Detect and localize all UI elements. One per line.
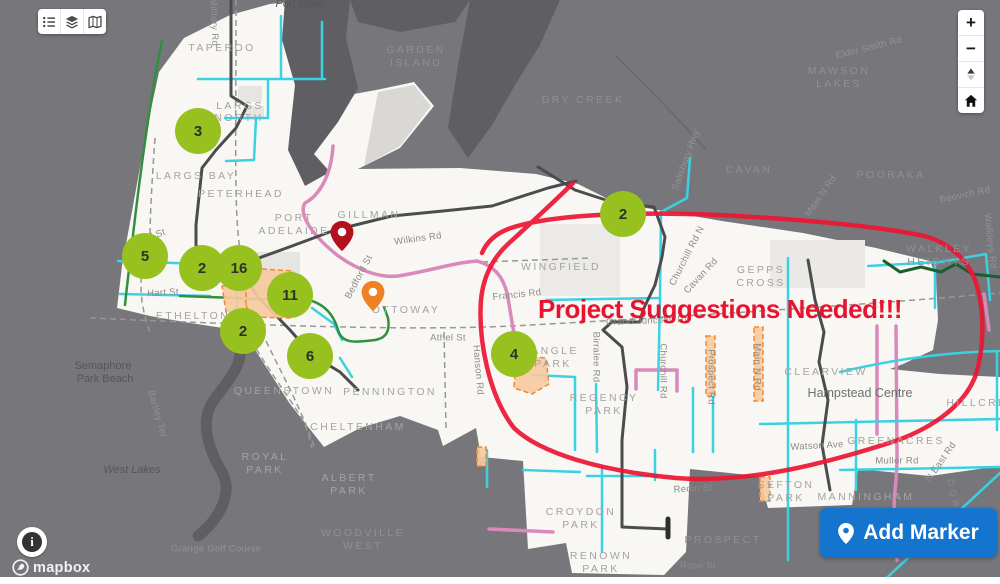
info-button[interactable]: i (17, 527, 47, 557)
map-app: TAPEROOLARGSNORTHLARGS BAYPETERHEADPORTA… (0, 0, 1000, 584)
map-nav-control: + − (958, 10, 984, 113)
list-icon (42, 15, 56, 29)
cluster-marker[interactable]: 4 (491, 331, 537, 377)
mapbox-logo[interactable]: mapbox (12, 559, 90, 576)
cluster-marker[interactable]: 2 (600, 191, 646, 237)
zoom-in-button[interactable]: + (958, 10, 984, 35)
cluster-marker[interactable]: 3 (175, 108, 221, 154)
map-canvas[interactable] (0, 0, 1000, 584)
mapbox-logo-text: mapbox (33, 560, 90, 576)
tilt-button[interactable] (958, 61, 984, 87)
mapbox-logo-icon (12, 559, 29, 576)
dark-red-pin[interactable] (331, 221, 354, 257)
cluster-marker[interactable]: 16 (216, 245, 262, 291)
add-marker-pin-icon (838, 523, 854, 544)
layers-button[interactable] (60, 9, 83, 34)
cluster-marker[interactable]: 2 (220, 308, 266, 354)
map-icon (88, 15, 102, 29)
cluster-marker[interactable]: 11 (267, 272, 313, 318)
orange-pin[interactable] (362, 281, 385, 317)
info-icon: i (22, 532, 42, 552)
cluster-marker[interactable]: 5 (122, 233, 168, 279)
home-icon (964, 94, 978, 108)
cluster-marker[interactable]: 6 (287, 333, 333, 379)
add-marker-button[interactable]: Add Marker (820, 508, 997, 558)
map-toolbar (38, 9, 106, 34)
zoom-out-button[interactable]: − (958, 35, 984, 61)
add-marker-label: Add Marker (863, 521, 979, 545)
layers-icon (65, 15, 79, 29)
tilt-icon (964, 67, 978, 82)
list-button[interactable] (38, 9, 60, 34)
page-bottom-strip (0, 577, 1000, 584)
basemap-button[interactable] (83, 9, 106, 34)
annotation-text: Project Suggestions Needed!!! (519, 294, 921, 325)
home-button[interactable] (958, 87, 984, 113)
